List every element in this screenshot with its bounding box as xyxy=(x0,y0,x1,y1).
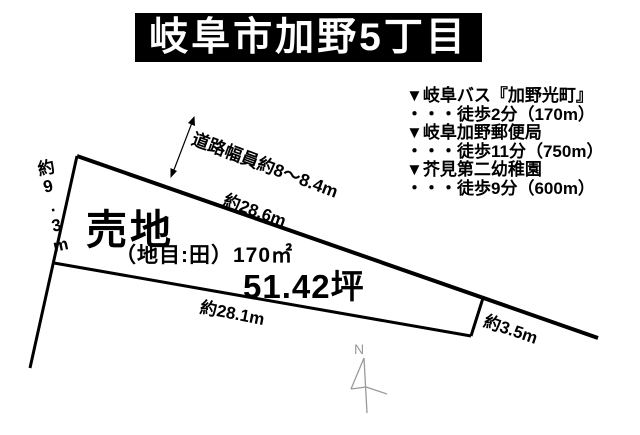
access-walk-time: ・・・徒歩11分（750m） xyxy=(406,143,603,162)
north-label: N xyxy=(354,341,364,357)
access-info-list: ▼岐阜バス『加野光町』 ・・・徒歩2分（170m） ▼岐阜加野郵便局 ・・・徒歩… xyxy=(406,87,603,199)
page-title: 岐阜市加野5丁目 xyxy=(135,13,482,62)
area-tsubo: 51.42坪 xyxy=(243,260,365,308)
access-place: ▼芥見第二幼稚園 xyxy=(406,161,603,180)
access-place: ▼岐阜加野郵便局 xyxy=(406,124,603,143)
access-place: ▼岐阜バス『加野光町』 xyxy=(406,87,603,106)
access-walk-time: ・・・徒歩9分（600m） xyxy=(406,180,603,199)
north-arrow-icon xyxy=(351,358,387,413)
land-plot-flyer: 岐阜市加野5丁目 ▼岐阜バス『加野光町』 ・・・徒歩2分（170m） ▼岐阜加野… xyxy=(0,0,640,435)
access-walk-time: ・・・徒歩2分（170m） xyxy=(406,106,603,125)
